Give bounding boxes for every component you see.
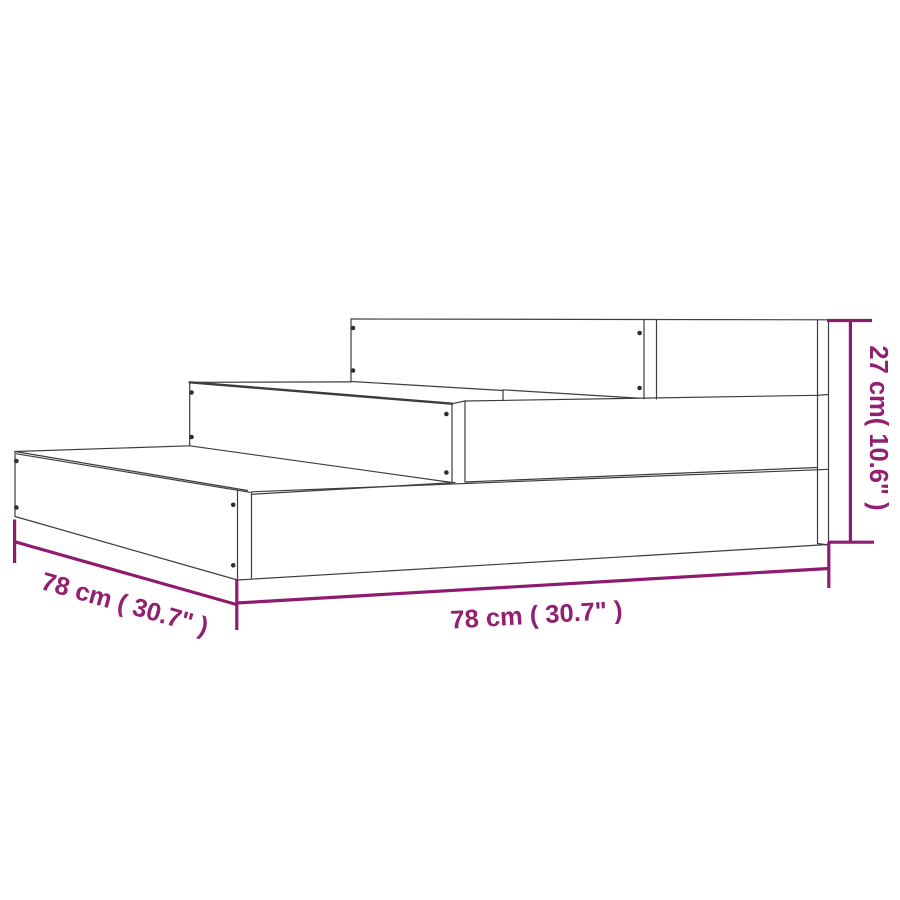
svg-text:27 cm( 10.6" ): 27 cm( 10.6" ) (864, 345, 892, 510)
svg-text:78 cm ( 30.7" ): 78 cm ( 30.7" ) (38, 568, 211, 642)
svg-text:78 cm ( 30.7" ): 78 cm ( 30.7" ) (450, 596, 624, 634)
